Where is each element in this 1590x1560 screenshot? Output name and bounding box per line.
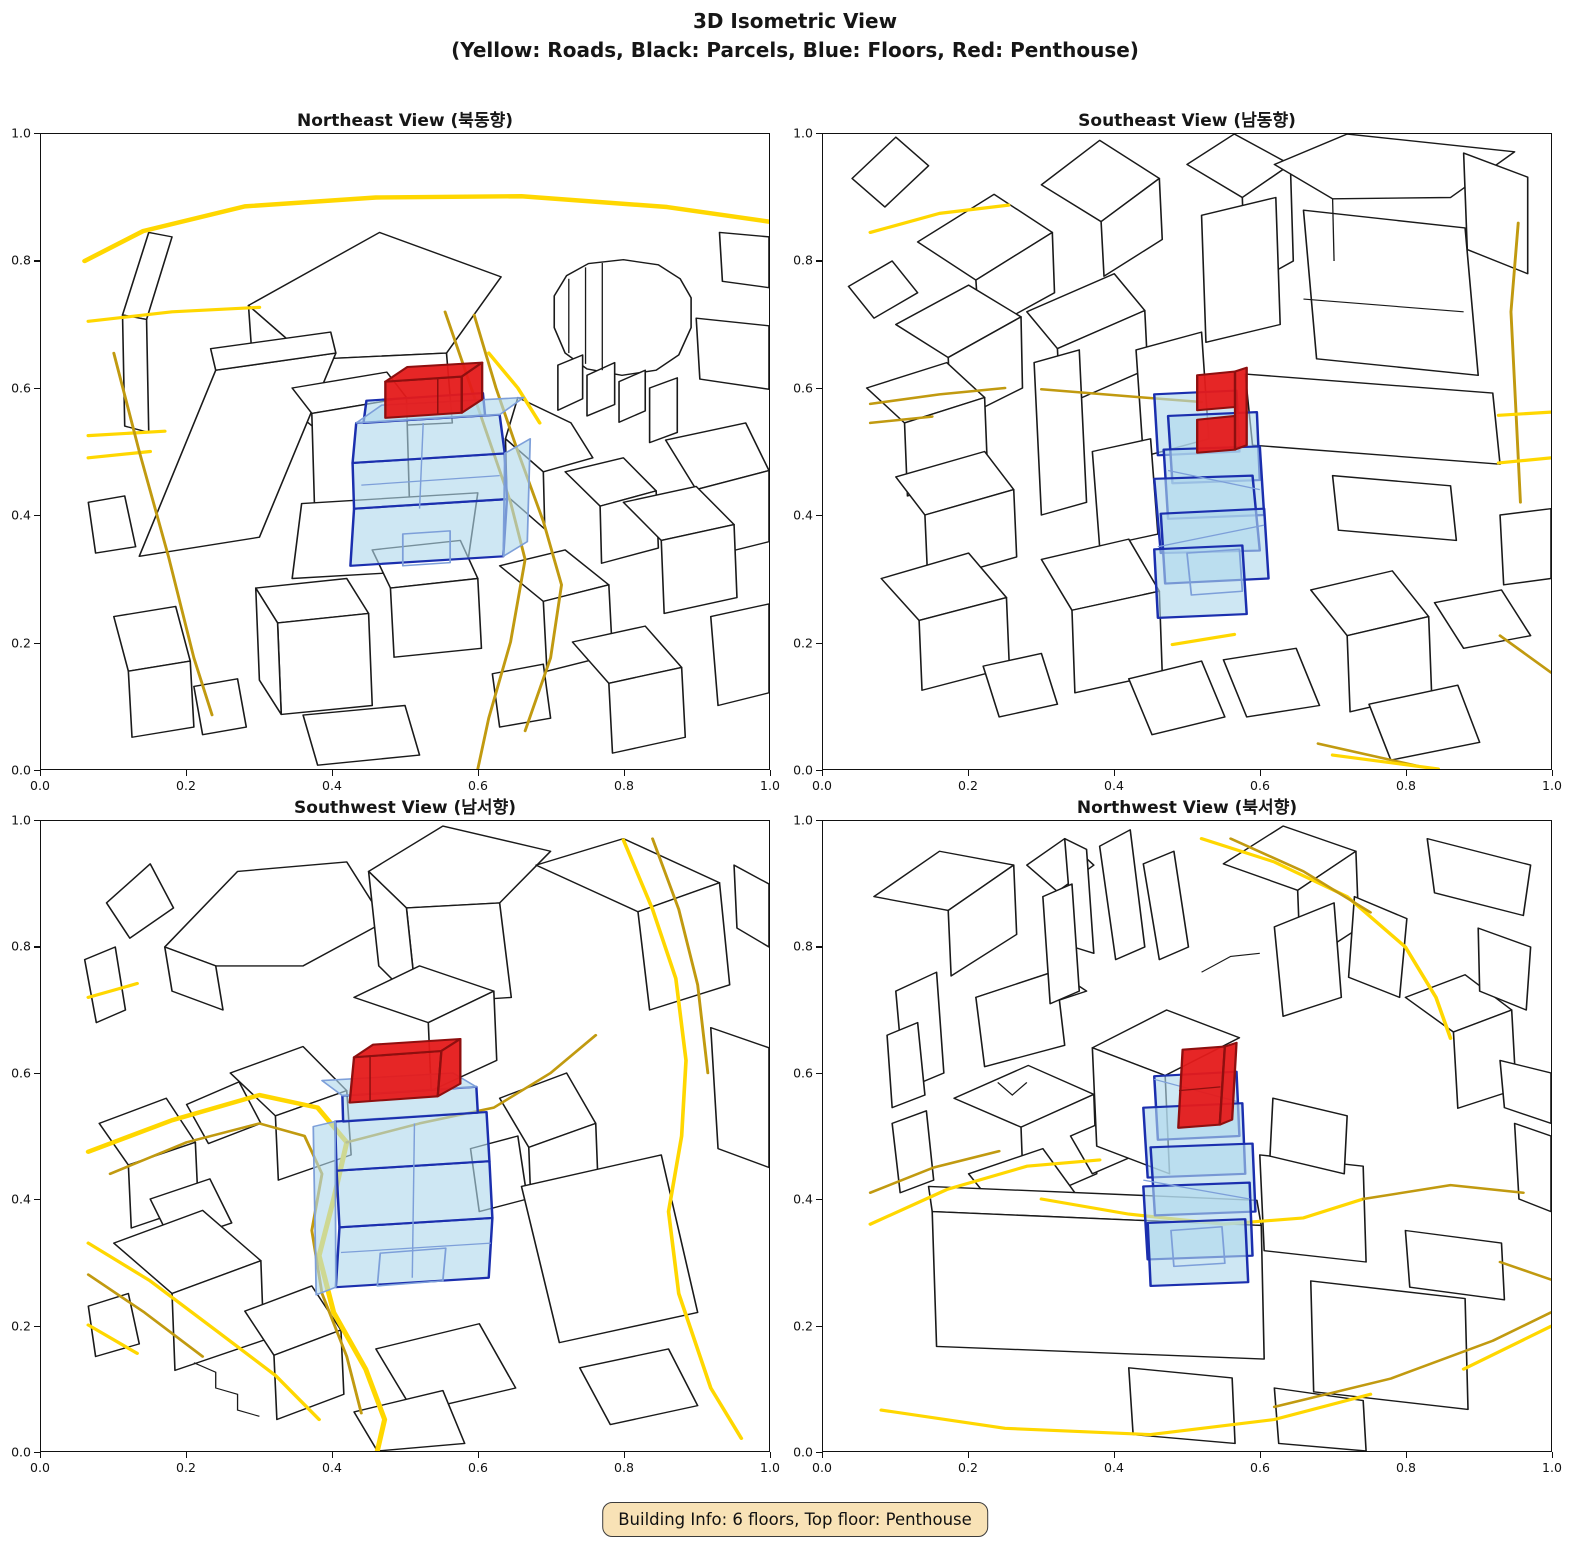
subplot-southeast-title: Southeast View (남동향)	[1078, 106, 1296, 131]
subplot-southeast: Southeast View (남동향) 0.00.00.20.20.40.40…	[822, 133, 1552, 770]
x-tick-mark	[1260, 1452, 1261, 1458]
parcel-outline	[848, 261, 917, 318]
x-tick-mark	[822, 1452, 823, 1458]
northeast-plot-area	[40, 133, 770, 770]
x-tick-label: 0.2	[176, 1460, 196, 1475]
y-tick-mark	[816, 770, 822, 771]
road-line	[1500, 636, 1551, 673]
southwest-plot-area	[40, 820, 770, 1452]
y-tick-label: 0.6	[793, 380, 813, 395]
parcel-outline	[1100, 830, 1145, 960]
parcel-outline	[1143, 851, 1188, 959]
parcel-detail-line	[1202, 953, 1260, 972]
parcel-outline	[852, 137, 928, 207]
y-tick-mark	[816, 133, 822, 134]
parcel-outline	[558, 355, 583, 410]
subplot-northeast-title: Northeast View (북동향)	[297, 106, 513, 131]
y-tick-label: 1.0	[11, 126, 31, 141]
x-tick-mark	[1552, 1452, 1553, 1458]
y-tick-mark	[34, 260, 40, 261]
y-tick-label: 0.8	[793, 939, 813, 954]
x-tick-label: 0.8	[614, 778, 634, 793]
road-line	[1333, 755, 1439, 769]
y-tick-label: 0.6	[11, 380, 31, 395]
y-tick-label: 1.0	[793, 813, 813, 828]
parcel-outline	[1202, 198, 1281, 343]
parcel-outline	[369, 826, 551, 908]
y-tick-mark	[816, 946, 822, 947]
x-tick-label: 1.0	[1542, 1460, 1562, 1475]
y-tick-label: 0.2	[11, 635, 31, 650]
parcel-outline	[123, 232, 173, 319]
penthouse-box	[1235, 368, 1247, 450]
y-tick-mark	[34, 820, 40, 821]
x-tick-label: 0.4	[1104, 1460, 1124, 1475]
x-tick-mark	[40, 1452, 41, 1458]
building-info-badge: Building Info: 6 floors, Top floor: Pent…	[602, 1502, 988, 1537]
parcel-outline	[619, 370, 645, 422]
southeast-scene	[823, 134, 1551, 769]
parcel-outline	[711, 604, 769, 706]
subplot-southwest: Southwest View (남서향) 0.00.00.20.20.40.40…	[40, 820, 770, 1452]
x-tick-label: 0.2	[958, 1460, 978, 1475]
x-tick-label: 0.4	[322, 778, 342, 793]
southwest-scene	[41, 821, 769, 1451]
parcel-outline	[1333, 476, 1457, 541]
figure-title-line1: 3D Isometric View	[0, 7, 1590, 36]
y-tick-mark	[34, 946, 40, 947]
parcel-outline	[1464, 153, 1528, 274]
parcel-outline	[711, 1028, 769, 1168]
x-tick-label: 1.0	[760, 1460, 780, 1475]
x-tick-label: 0.6	[468, 778, 488, 793]
parcel-outline	[1435, 590, 1531, 648]
x-tick-label: 0.2	[958, 778, 978, 793]
x-tick-label: 0.0	[30, 778, 50, 793]
parcel-outline	[521, 1155, 697, 1343]
y-tick-label: 0.0	[793, 1445, 813, 1460]
x-tick-mark	[186, 770, 187, 776]
y-tick-mark	[816, 1073, 822, 1074]
x-tick-mark	[770, 1452, 771, 1458]
x-tick-mark	[1406, 1452, 1407, 1458]
northwest-scene	[823, 821, 1551, 1451]
parcel-outline	[123, 315, 149, 432]
y-tick-mark	[34, 1452, 40, 1453]
y-tick-label: 0.8	[11, 253, 31, 268]
northeast-scene	[41, 134, 769, 769]
road-line	[1499, 458, 1551, 463]
x-tick-label: 0.0	[30, 1460, 50, 1475]
parcel-outline	[719, 232, 769, 287]
y-tick-label: 0.8	[11, 939, 31, 954]
y-tick-label: 0.0	[793, 763, 813, 778]
x-tick-label: 0.8	[614, 1460, 634, 1475]
penthouse-box	[1197, 371, 1235, 410]
parcel-outline	[1515, 1123, 1551, 1211]
y-tick-label: 0.2	[11, 1318, 31, 1333]
x-tick-mark	[40, 770, 41, 776]
y-tick-mark	[816, 1326, 822, 1327]
x-tick-mark	[1552, 770, 1553, 776]
road-line	[88, 307, 259, 321]
parcel-detail-line	[194, 1363, 260, 1417]
parcel-outline	[1223, 648, 1319, 717]
parcel-outline	[390, 579, 481, 658]
x-tick-mark	[624, 770, 625, 776]
x-tick-label: 0.8	[1396, 1460, 1416, 1475]
x-tick-mark	[1114, 1452, 1115, 1458]
penthouse-box	[1197, 416, 1235, 453]
parcel-outline	[661, 525, 737, 614]
parcel-outline	[1092, 439, 1158, 547]
parcel-outline	[696, 318, 769, 389]
y-tick-mark	[34, 388, 40, 389]
y-tick-label: 1.0	[793, 126, 813, 141]
floor-box	[1154, 545, 1246, 617]
y-tick-label: 0.8	[793, 253, 813, 268]
y-tick-mark	[816, 1452, 822, 1453]
parcel-outline	[1427, 839, 1530, 916]
parcel-outline	[1303, 210, 1478, 375]
y-tick-label: 0.6	[793, 1065, 813, 1080]
parcel-outline	[1500, 509, 1551, 585]
y-tick-mark	[34, 1199, 40, 1200]
road-line	[88, 431, 164, 435]
figure-title-line2: (Yellow: Roads, Black: Parcels, Blue: Fl…	[0, 36, 1590, 65]
y-tick-label: 0.2	[793, 1318, 813, 1333]
x-tick-mark	[186, 1452, 187, 1458]
x-tick-mark	[1406, 770, 1407, 776]
parcel-outline	[587, 363, 615, 416]
x-tick-mark	[1260, 770, 1261, 776]
subplot-southwest-title: Southwest View (남서향)	[294, 793, 516, 818]
parcel-outline	[650, 378, 678, 443]
y-tick-mark	[34, 515, 40, 516]
y-tick-label: 0.4	[11, 508, 31, 523]
subplot-northwest-title: Northwest View (북서향)	[1077, 793, 1297, 818]
y-tick-label: 0.2	[793, 635, 813, 650]
parcel-outline	[1034, 350, 1086, 515]
floor-box	[503, 439, 530, 556]
figure: 3D Isometric View (Yellow: Roads, Black:…	[0, 0, 1590, 1560]
x-tick-mark	[822, 770, 823, 776]
x-tick-label: 0.0	[812, 778, 832, 793]
parcel-outline	[609, 667, 685, 753]
y-tick-mark	[816, 820, 822, 821]
parcel-outline	[85, 947, 126, 1023]
y-tick-label: 0.4	[11, 1192, 31, 1207]
y-tick-label: 0.0	[11, 1445, 31, 1460]
figure-title: 3D Isometric View (Yellow: Roads, Black:…	[0, 7, 1590, 65]
x-tick-label: 0.8	[1396, 778, 1416, 793]
x-tick-mark	[1114, 770, 1115, 776]
parcel-outline	[580, 1349, 698, 1425]
y-tick-mark	[816, 260, 822, 261]
y-tick-mark	[34, 1073, 40, 1074]
southeast-plot-area	[822, 133, 1552, 770]
y-tick-mark	[34, 770, 40, 771]
parcel-outline	[1245, 374, 1500, 464]
x-tick-label: 0.4	[322, 1460, 342, 1475]
penthouse-box	[385, 377, 461, 418]
x-tick-label: 1.0	[760, 778, 780, 793]
parcel-outline	[107, 864, 174, 938]
penthouse-box	[350, 1051, 442, 1103]
parcel-outline	[88, 496, 135, 553]
y-tick-mark	[816, 643, 822, 644]
parcel-outline	[1311, 1281, 1468, 1410]
parcel-outline	[165, 862, 385, 966]
x-tick-mark	[770, 770, 771, 776]
parcel-outline	[734, 865, 769, 947]
parcel-outline	[1405, 1231, 1504, 1300]
x-tick-label: 0.2	[176, 778, 196, 793]
y-tick-mark	[816, 1199, 822, 1200]
road-line	[1499, 412, 1551, 415]
y-tick-label: 0.0	[11, 763, 31, 778]
y-tick-mark	[816, 515, 822, 516]
subplot-northeast: Northeast View (북동향) 0.00.00.20.20.40.40…	[40, 133, 770, 770]
y-tick-mark	[34, 133, 40, 134]
parcel-outline	[114, 606, 190, 671]
road-line	[1172, 634, 1234, 644]
x-tick-mark	[332, 770, 333, 776]
parcel-outline	[128, 661, 194, 737]
x-tick-mark	[332, 1452, 333, 1458]
parcel-outline	[1043, 884, 1079, 1004]
y-tick-label: 0.6	[11, 1065, 31, 1080]
parcel-outline	[1260, 1155, 1366, 1262]
floor-box	[336, 1218, 493, 1287]
parcel-outline	[1349, 897, 1407, 998]
y-tick-label: 0.4	[793, 508, 813, 523]
y-tick-mark	[816, 388, 822, 389]
x-tick-label: 1.0	[1542, 778, 1562, 793]
x-tick-mark	[968, 770, 969, 776]
floor-box	[313, 1122, 336, 1295]
y-tick-mark	[34, 1326, 40, 1327]
parcel-outline	[1274, 903, 1341, 1016]
parcel-outline	[887, 1023, 925, 1108]
parcel-outline	[303, 706, 419, 766]
x-tick-mark	[624, 1452, 625, 1458]
y-tick-label: 0.4	[793, 1192, 813, 1207]
x-tick-label: 0.6	[1250, 1460, 1270, 1475]
northwest-plot-area	[822, 820, 1552, 1452]
road-line	[1363, 1185, 1523, 1199]
subplot-northwest: Northwest View (북서향) 0.00.00.20.20.40.40…	[822, 820, 1552, 1452]
x-tick-mark	[478, 770, 479, 776]
x-tick-label: 0.0	[812, 1460, 832, 1475]
x-tick-mark	[968, 1452, 969, 1458]
y-tick-mark	[34, 643, 40, 644]
x-tick-label: 0.6	[468, 1460, 488, 1475]
x-tick-label: 0.4	[1104, 778, 1124, 793]
y-tick-label: 1.0	[11, 813, 31, 828]
x-tick-mark	[478, 1452, 479, 1458]
parcel-outline	[278, 613, 373, 714]
road-line	[1500, 1262, 1551, 1280]
x-tick-label: 0.6	[1250, 778, 1270, 793]
parcel-outline	[1500, 1060, 1551, 1123]
